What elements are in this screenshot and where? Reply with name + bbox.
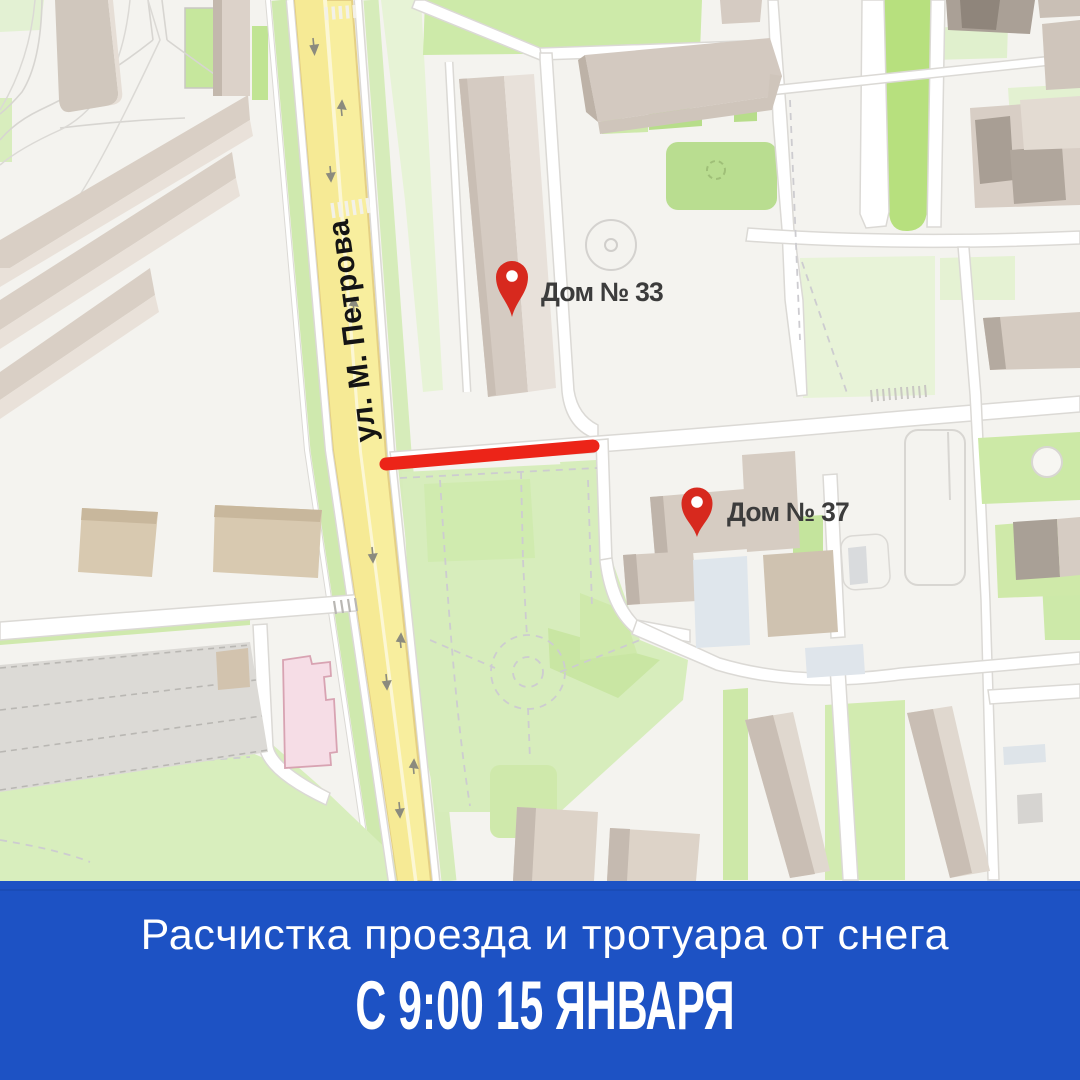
svg-text:Дом № 37: Дом № 37 <box>727 497 849 527</box>
svg-text:Дом № 33: Дом № 33 <box>541 277 663 307</box>
